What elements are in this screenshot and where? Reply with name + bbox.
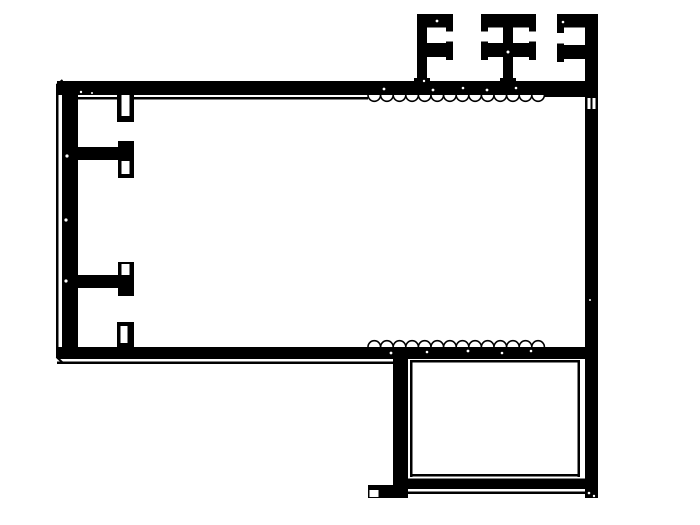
lowerbox-bottom-band xyxy=(408,479,585,490)
scan-noise xyxy=(501,352,504,355)
drawing-canvas xyxy=(0,0,700,525)
scan-noise xyxy=(436,20,439,23)
right-wall xyxy=(585,14,598,498)
fin2-top-bar-cap-right xyxy=(529,14,536,32)
bottom-wall-band xyxy=(57,347,585,359)
fin2-mid-bar-cap-left xyxy=(481,42,488,61)
screw-boss-top-slot xyxy=(122,95,130,116)
cad-drawing xyxy=(0,0,700,525)
scan-noise xyxy=(64,218,67,221)
scan-noise xyxy=(65,154,68,157)
scan-noise xyxy=(589,299,591,301)
lowerbox-bottom-outer-line xyxy=(408,492,585,495)
scan-noise xyxy=(91,92,93,94)
scan-noise xyxy=(432,89,435,92)
scan-noise xyxy=(80,91,82,93)
fin1-top-arm-cap xyxy=(446,14,453,32)
top-inner-skin-right xyxy=(544,95,585,98)
fin3-mid-arm-cap xyxy=(557,44,564,63)
lowerbox-bottom-inner-skin xyxy=(410,474,580,477)
scan-noise xyxy=(390,352,393,355)
scan-noise xyxy=(64,279,67,282)
fin1-mid-arm-cap xyxy=(446,42,453,61)
scan-noise xyxy=(467,350,470,353)
top-inner-skin-left xyxy=(62,97,368,100)
screw-boss-bottom-slot xyxy=(121,326,128,343)
fin2-stem-base-flare xyxy=(500,78,516,84)
right-wall-notch-a xyxy=(588,98,591,109)
mid-arm-end-slot xyxy=(122,161,130,174)
low-arm-end-slot xyxy=(122,264,130,275)
scan-noise xyxy=(486,89,489,92)
lowerbox-top-inner-skin xyxy=(410,360,580,363)
scan-noise xyxy=(593,495,595,497)
fin2-mid-bar-cap-right xyxy=(529,42,536,61)
lowerbox-left-inner-skin xyxy=(410,360,413,477)
scan-noise xyxy=(530,350,533,353)
scan-noise xyxy=(423,80,425,82)
scan-noise xyxy=(515,87,518,90)
right-wall-notch-b xyxy=(593,98,596,109)
bottom-outer-contour-line xyxy=(57,362,393,365)
lowerbox-left-wall xyxy=(393,347,408,498)
scan-noise xyxy=(373,491,375,493)
lowerbox-right-inner-skin xyxy=(578,360,581,477)
fin3-top-arm-cap xyxy=(557,14,564,33)
fin1-stem-base-flare xyxy=(414,78,430,84)
left-outer-contour-line xyxy=(56,84,59,358)
fin2-top-bar xyxy=(481,14,536,28)
fin2-mid-bar xyxy=(481,43,536,57)
fin2-top-bar-cap-left xyxy=(481,14,488,32)
scan-noise xyxy=(507,51,510,54)
scan-noise xyxy=(588,492,591,495)
scan-noise xyxy=(462,87,465,90)
scan-noise xyxy=(562,21,565,24)
scan-noise xyxy=(426,351,429,354)
scan-noise xyxy=(383,88,386,91)
